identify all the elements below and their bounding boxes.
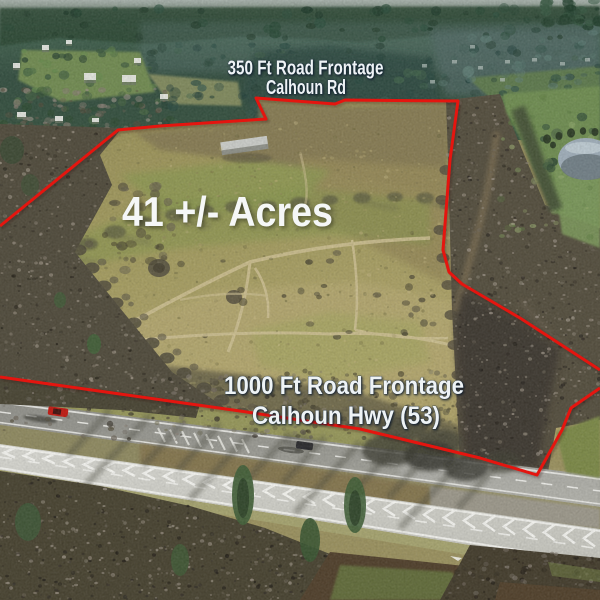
svg-text:1000 Ft Road Frontage: 1000 Ft Road Frontage bbox=[224, 372, 464, 400]
svg-text:Calhoun Hwy (53): Calhoun Hwy (53) bbox=[252, 402, 440, 430]
svg-text:Calhoun Rd: Calhoun Rd bbox=[266, 77, 346, 99]
svg-text:41 +/- Acres: 41 +/- Acres bbox=[122, 188, 333, 235]
